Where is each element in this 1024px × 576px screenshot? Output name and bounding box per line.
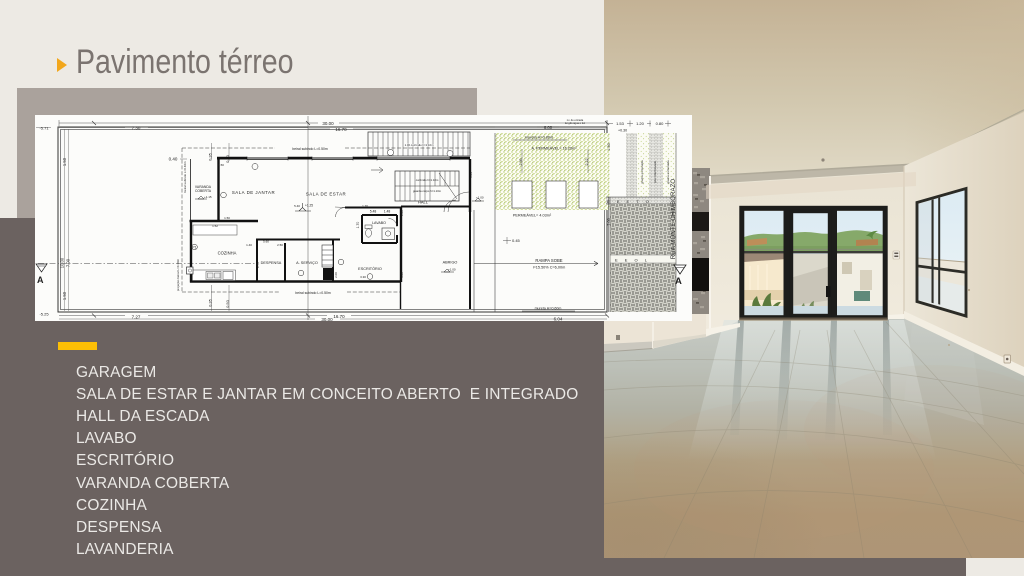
svg-text:SALA DE JANTAR: SALA DE JANTAR — [232, 190, 275, 195]
svg-text:+0.30: +0.30 — [618, 129, 627, 133]
svg-text:P1: P1 — [192, 246, 196, 250]
svg-text:5.60: 5.60 — [263, 240, 269, 244]
svg-text:7.00: 7.00 — [607, 218, 611, 225]
svg-text:grama esmeralda: grama esmeralda — [640, 160, 644, 184]
svg-text:RAMPA SOBE: RAMPA SOBE — [535, 258, 562, 263]
svg-text:1.50: 1.50 — [218, 163, 224, 167]
svg-text:2.56: 2.56 — [519, 159, 523, 166]
svg-text:30.00: 30.00 — [321, 317, 333, 321]
svg-text:1.50: 1.50 — [62, 291, 67, 300]
svg-text:beiral subindo L=0.40m: beiral subindo L=0.40m — [183, 161, 187, 193]
svg-text:ESCRITÓRIO: ESCRITÓRIO — [358, 266, 382, 271]
svg-text:2.70: 2.70 — [256, 262, 260, 268]
svg-text:E E E T O: E E E T O — [607, 199, 652, 204]
svg-text:1.70: 1.70 — [362, 204, 368, 208]
svg-text:1.00 corrimão h=1.10m: 1.00 corrimão h=1.10m — [405, 143, 435, 147]
svg-text:2.00: 2.00 — [400, 210, 404, 216]
svg-text:0.40: 0.40 — [169, 157, 178, 162]
svg-text:E E O L: E E O L — [615, 258, 650, 263]
svg-text:COBERTA: COBERTA — [195, 189, 212, 193]
svg-text:COZINHA: COZINHA — [218, 251, 237, 256]
svg-text:piso intertravado: piso intertravado — [653, 161, 657, 184]
svg-text:1.40: 1.40 — [246, 243, 252, 247]
svg-text:1.52: 1.52 — [212, 224, 218, 228]
svg-text:beiral subindo L=0.50m: beiral subindo L=0.50m — [295, 291, 331, 295]
svg-text:-5.25: -5.25 — [39, 312, 49, 317]
svg-text:30.00: 30.00 — [322, 121, 334, 126]
svg-text:corrimão h=1.10m: corrimão h=1.10m — [416, 178, 439, 182]
svg-text:2.22: 2.22 — [585, 159, 589, 166]
svg-text:A: A — [675, 276, 682, 287]
svg-text:16.70: 16.70 — [335, 127, 347, 132]
svg-text:0.50: 0.50 — [225, 299, 230, 308]
svg-text:DESPENSA: DESPENSA — [261, 261, 282, 265]
svg-text:+1.25: +1.25 — [305, 204, 313, 208]
svg-text:1.70: 1.70 — [356, 222, 360, 229]
svg-text:A. PERMEÁVEL= 16.26m²: A. PERMEÁVEL= 16.26m² — [531, 147, 577, 151]
svg-text:lar.gds.água e luz: lar.gds.água e luz — [565, 121, 586, 125]
svg-text:beiral subindo L=0.50m: beiral subindo L=0.50m — [292, 147, 328, 151]
svg-text:2.00: 2.00 — [334, 272, 338, 278]
svg-text:+1.00: +1.00 — [476, 196, 484, 200]
svg-text:A: A — [37, 275, 44, 285]
svg-text:3.30: 3.30 — [360, 275, 366, 279]
svg-text:-5.71: -5.71 — [39, 126, 49, 131]
svg-text:5.40: 5.40 — [294, 204, 300, 208]
svg-text:A. SERVIÇO: A. SERVIÇO — [296, 261, 318, 265]
svg-text:1.50: 1.50 — [224, 216, 230, 220]
svg-text:HALL: HALL — [418, 200, 429, 205]
svg-text:guarda corpo h=1.10m: guarda corpo h=1.10m — [413, 189, 442, 193]
svg-text:mureta H=0.80m: mureta H=0.80m — [525, 136, 553, 140]
svg-text:0.35: 0.35 — [208, 298, 213, 307]
svg-text:ABRIGO: ABRIGO — [443, 261, 458, 265]
svg-text:RUA MONTE CHIMBORAZO: RUA MONTE CHIMBORAZO — [670, 179, 677, 260]
svg-text:i=15.50% C=6,00m: i=15.50% C=6,00m — [533, 266, 566, 270]
svg-text:1.50: 1.50 — [62, 157, 67, 166]
svg-text:SALA DE ESTAR: SALA DE ESTAR — [306, 192, 346, 197]
svg-text:PERMEÁVEL= 4.03m²: PERMEÁVEL= 4.03m² — [513, 214, 552, 218]
svg-text:16.70: 16.70 — [333, 314, 345, 319]
svg-text:+1.00: +1.00 — [448, 268, 456, 272]
svg-text:5.48: 5.48 — [370, 210, 377, 214]
svg-text:mureta H=0.60m: mureta H=0.60m — [535, 307, 562, 311]
svg-text:+1.15: +1.15 — [204, 195, 212, 199]
svg-text:10.00: 10.00 — [60, 257, 65, 268]
svg-text:0.45: 0.45 — [512, 238, 521, 243]
svg-text:0.35: 0.35 — [208, 152, 213, 161]
svg-text:LAVABO: LAVABO — [372, 221, 386, 225]
svg-text:1.48: 1.48 — [384, 210, 391, 214]
svg-text:1.20: 1.20 — [636, 121, 645, 126]
svg-text:6.04: 6.04 — [554, 317, 563, 322]
svg-text:7.30: 7.30 — [132, 125, 141, 130]
svg-text:2.50: 2.50 — [277, 243, 283, 247]
svg-text:7.00: 7.00 — [66, 258, 71, 267]
svg-text:1.50: 1.50 — [607, 143, 611, 150]
svg-text:6.00: 6.00 — [544, 125, 553, 130]
svg-text:3.00: 3.00 — [400, 272, 404, 278]
svg-text:7.27: 7.27 — [132, 314, 141, 319]
svg-text:1.03: 1.03 — [469, 172, 473, 178]
svg-text:1.53: 1.53 — [616, 121, 625, 126]
svg-text:0.80: 0.80 — [656, 121, 665, 126]
svg-text:projeção beiral L=0.40m: projeção beiral L=0.40m — [176, 258, 180, 291]
